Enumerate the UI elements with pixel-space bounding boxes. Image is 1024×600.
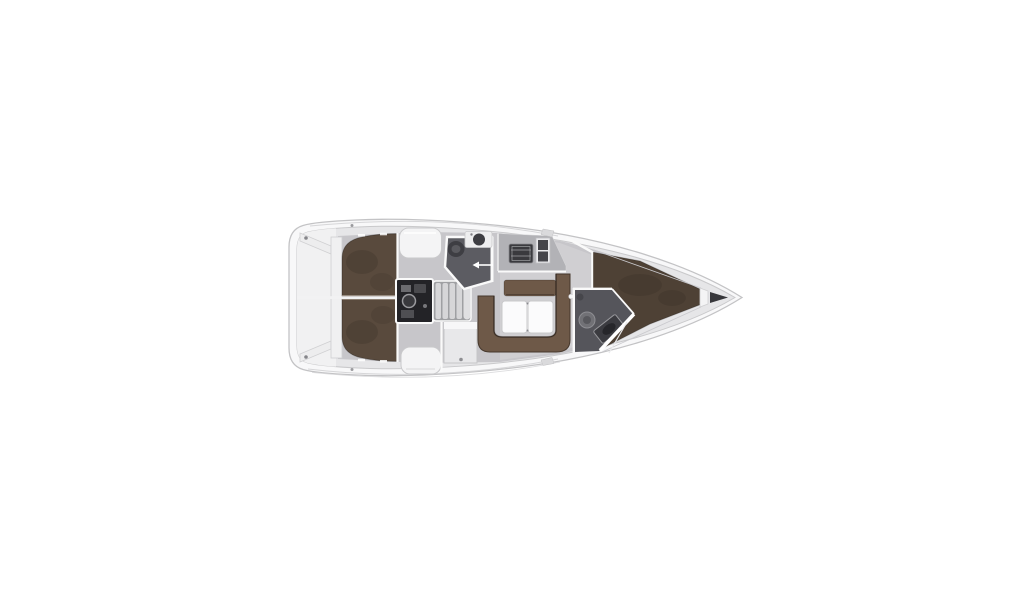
berth-shading bbox=[346, 250, 378, 274]
salon-table-leaf-left bbox=[502, 301, 527, 333]
galley-stove bbox=[509, 244, 533, 263]
berth-shading bbox=[370, 273, 394, 291]
berth-shading bbox=[346, 320, 378, 344]
engine-pulley bbox=[403, 295, 416, 308]
berth-shading bbox=[371, 306, 395, 324]
shower-fitting bbox=[577, 294, 584, 301]
berth-shading bbox=[618, 274, 662, 296]
faucet-dot bbox=[470, 233, 472, 235]
cabinet-top-band bbox=[444, 322, 477, 329]
washbasin-bowl-port bbox=[473, 234, 485, 246]
toilet-port-seat bbox=[452, 245, 461, 253]
step bbox=[436, 283, 442, 319]
engine-detail bbox=[414, 284, 426, 293]
seat-pad-starboard bbox=[401, 347, 441, 374]
step bbox=[450, 283, 456, 319]
floor-plan-canvas bbox=[0, 0, 1024, 600]
table-hinge-dot bbox=[527, 303, 529, 305]
hatch-tick bbox=[358, 234, 365, 237]
bow-bulkhead bbox=[700, 288, 708, 307]
salon-bench bbox=[504, 280, 556, 296]
deck-cleat bbox=[304, 355, 308, 359]
deck-cleat bbox=[304, 236, 308, 240]
engine-detail bbox=[401, 285, 411, 292]
berth-shading bbox=[658, 290, 686, 306]
table-hinge-dot bbox=[527, 330, 529, 332]
deck-cleat bbox=[351, 224, 354, 227]
engine-detail bbox=[401, 310, 414, 318]
hatch-tick bbox=[358, 359, 365, 362]
hatch-tick bbox=[380, 233, 387, 236]
cabinet-knob bbox=[459, 358, 463, 362]
salon-table-leaf-right bbox=[528, 301, 553, 333]
step bbox=[443, 283, 449, 319]
deck-cleat bbox=[351, 368, 354, 371]
toilet-starboard-bowl bbox=[583, 316, 591, 324]
step bbox=[457, 283, 463, 319]
boat-floor-plan bbox=[0, 0, 1024, 600]
centerline-divider bbox=[297, 296, 397, 299]
engine-detail bbox=[423, 304, 427, 308]
galley-sink-bowl-2 bbox=[538, 252, 548, 262]
galley-sink-bowl-1 bbox=[538, 240, 548, 250]
hatch-tick bbox=[380, 360, 387, 363]
